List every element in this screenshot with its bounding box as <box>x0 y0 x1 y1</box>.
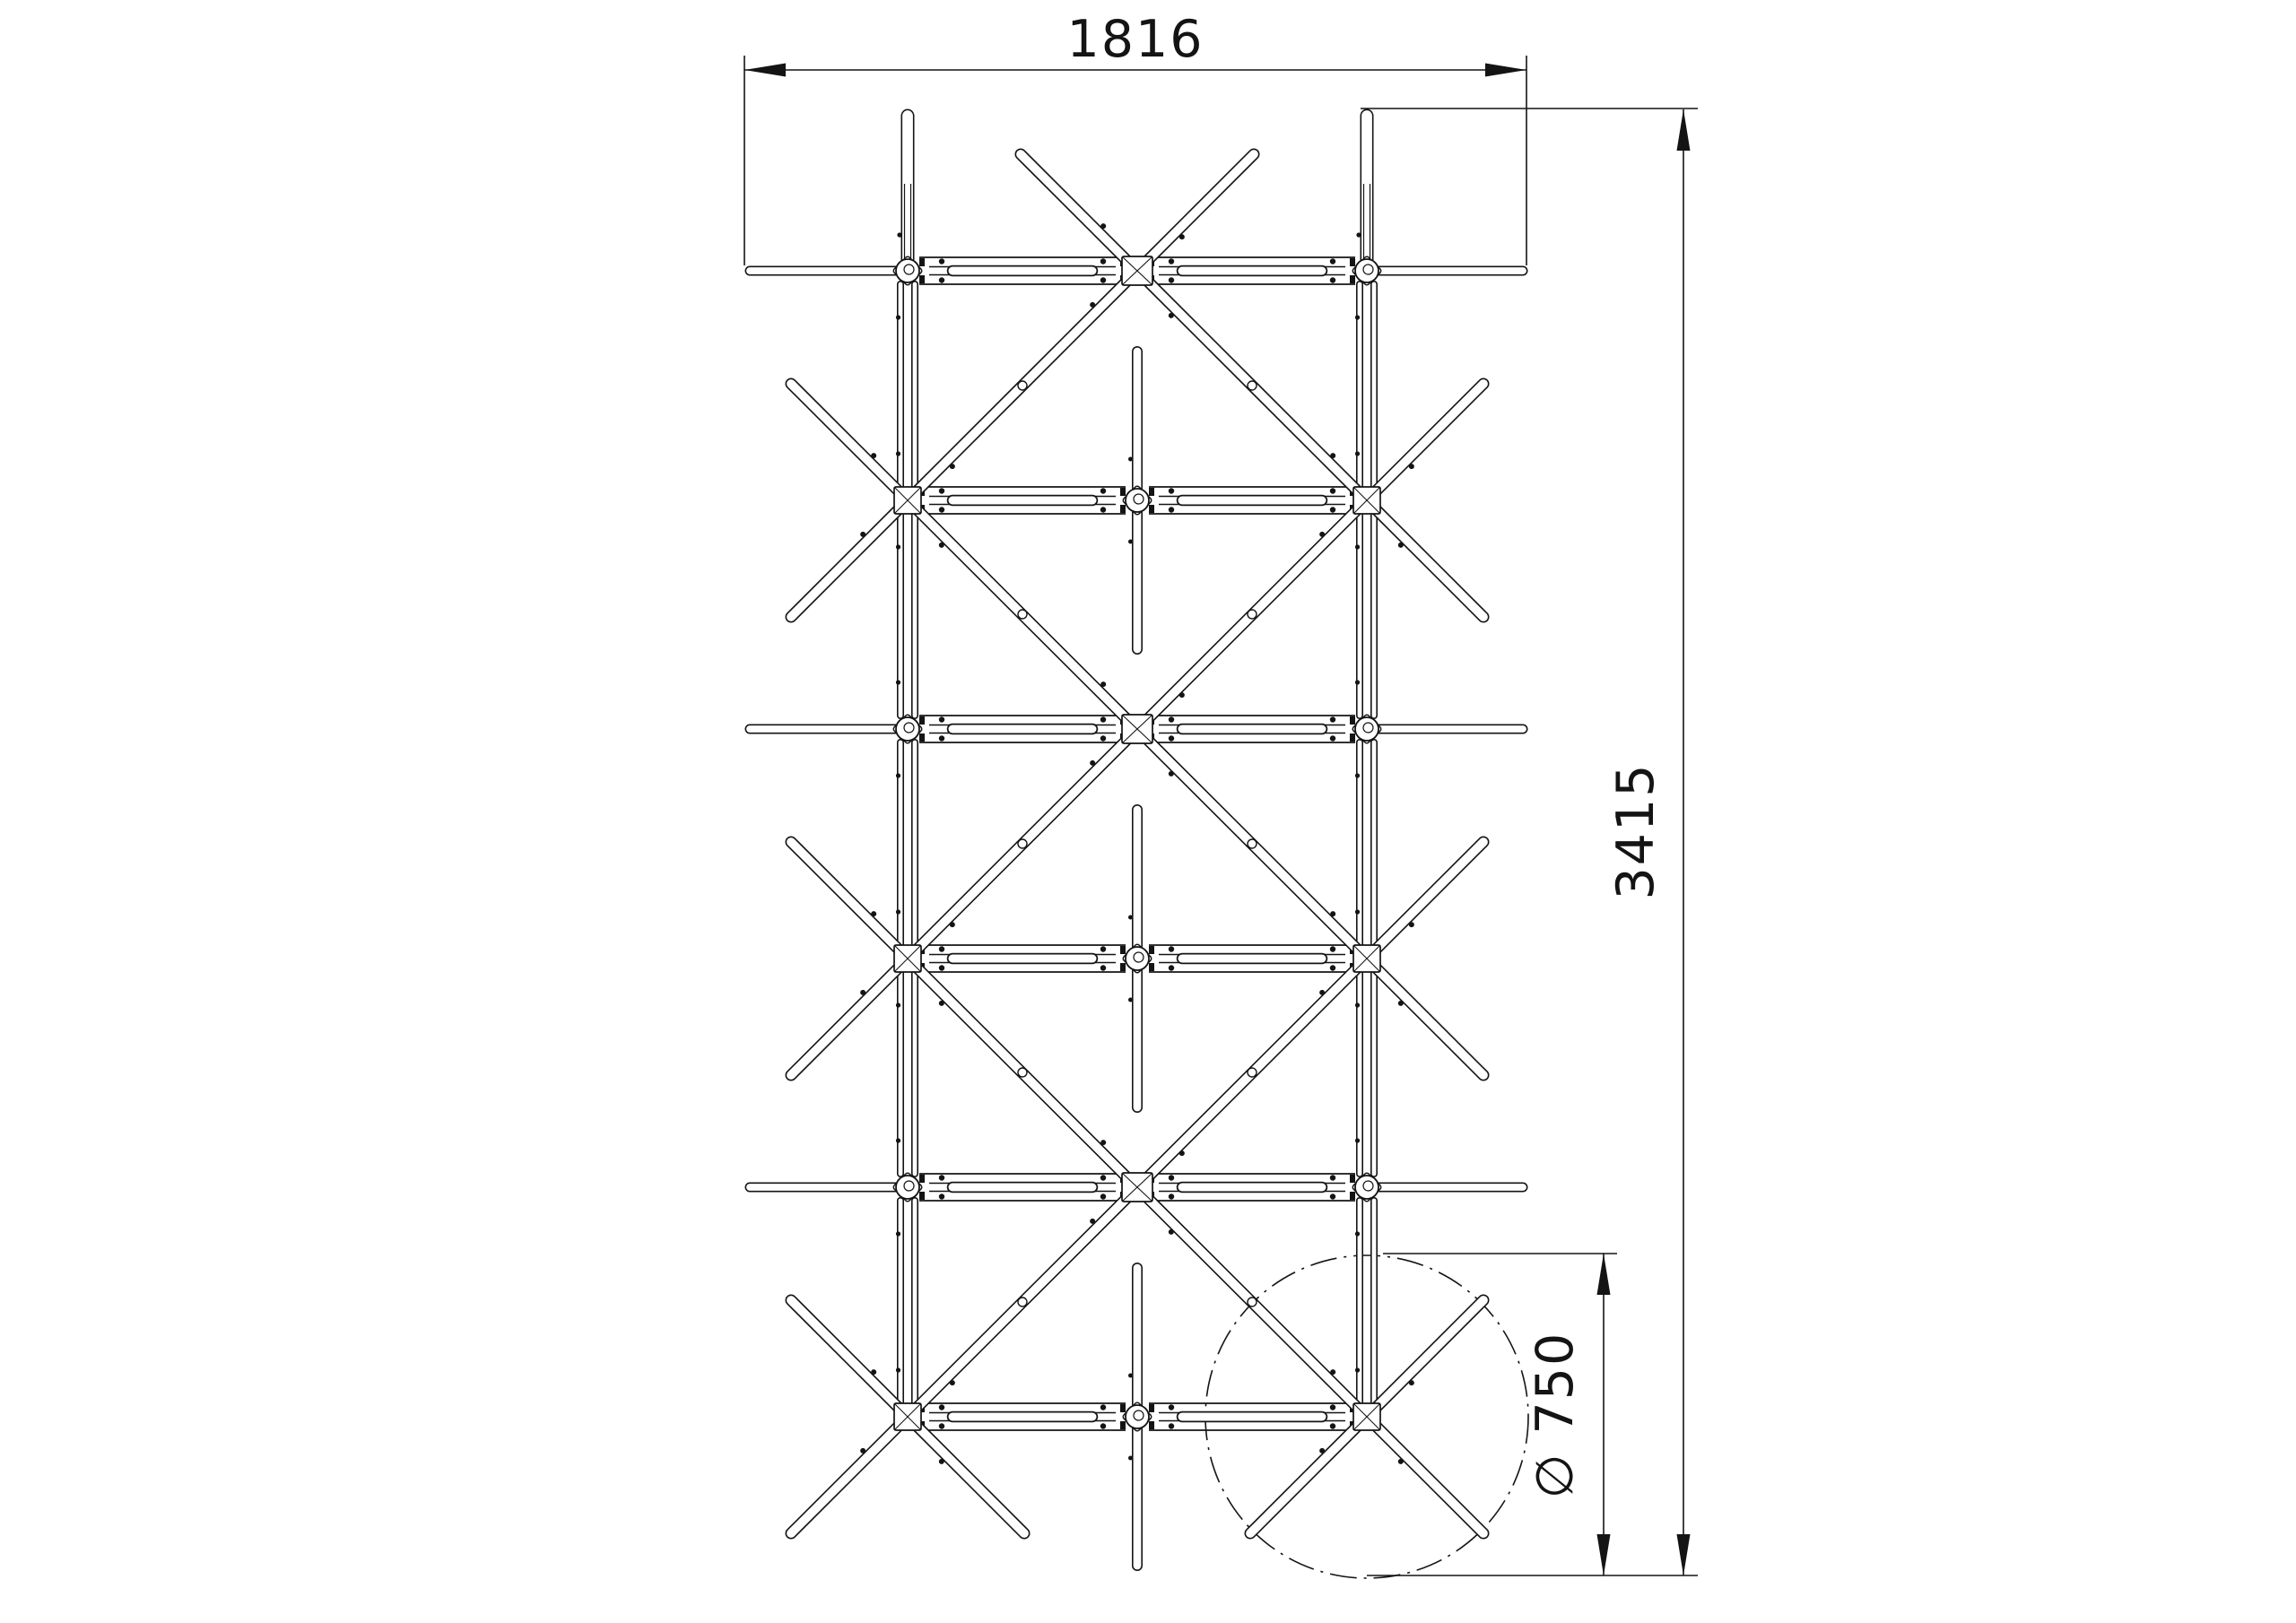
arrowhead-up-icon <box>1677 109 1691 151</box>
frame-tubes <box>750 116 1523 1566</box>
arrowhead-down-icon <box>1597 1534 1611 1575</box>
arrowhead-up-icon <box>1597 1254 1611 1295</box>
arrowhead-down-icon <box>1677 1534 1691 1575</box>
height-dim-label: 3415 <box>1606 762 1665 899</box>
dimension-annotations: 1816 3415 ∅ 750 <box>744 10 1698 1575</box>
arrowhead-left-icon <box>744 64 786 77</box>
diameter-dimension: ∅ 750 <box>1383 1254 1617 1575</box>
drawing-sheet: 1816 3415 ∅ 750 <box>0 0 2296 1623</box>
truss-structure <box>750 116 1523 1566</box>
width-dim-label: 1816 <box>1066 10 1204 69</box>
diameter-dim-label: ∅ 750 <box>1526 1332 1585 1499</box>
arrowhead-right-icon <box>1485 64 1526 77</box>
width-dimension: 1816 <box>744 10 1526 265</box>
technical-drawing-canvas: 1816 3415 ∅ 750 <box>0 0 2296 1623</box>
